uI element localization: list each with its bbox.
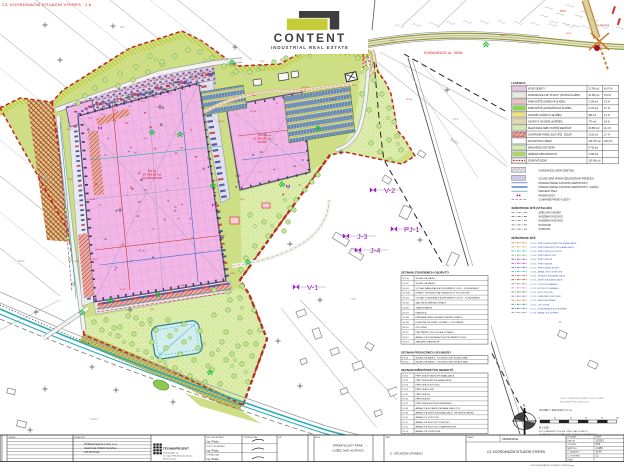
svg-text:150 00 Praha: 150 00 Praha [84, 450, 100, 454]
svg-text:C3-KOORDINAČNÍ SITUAČNÍ VÝKRES: C3-KOORDINAČNÍ SITUAČNÍ VÝKRES.dwg [530, 464, 575, 467]
svg-text:Technoprojekt, a.s.: Technoprojekt, a.s. [163, 452, 179, 455]
svg-text:IO 01 - PŘÍPOJKA SPLAŠKOVÉ KAN: IO 01 - PŘÍPOJKA SPLAŠKOVÉ KANALIZACE [531, 242, 577, 245]
svg-text:4,5%: 4,5% [170, 79, 175, 81]
svg-text:PŘÍPOJKA VODOVODU: PŘÍPOJKA VODOVODU [416, 384, 440, 387]
svg-text:Č. ZAKÁZKY: Č. ZAKÁZKY [568, 451, 581, 454]
svg-text:SO 03.1: SO 03.1 [403, 293, 412, 295]
svg-text:2,2 %: 2,2 % [604, 115, 610, 117]
svg-text:0: 0 [539, 418, 540, 420]
svg-text:CONTENT: CONTENT [274, 31, 347, 45]
svg-text:542/1: 542/1 [40, 177, 47, 181]
svg-text:PRO STAVEBNÍ POVOLENÍ LUŽEC NA: PRO STAVEBNÍ POVOLENÍ LUŽEC NAD VLTAVOU [539, 430, 588, 433]
svg-text:VYPRACOVAL: VYPRACOVAL [207, 454, 220, 457]
svg-text:PS 02: PS 02 [403, 362, 410, 364]
svg-text:770 m2: 770 m2 [589, 121, 597, 123]
svg-text:PARCELNÍ ČÍSLA: PARCELNÍ ČÍSLA [539, 190, 558, 193]
svg-text:≈0,000 = 163,230 m n.m.: ≈0,000 = 163,230 m n.m. [539, 408, 573, 412]
svg-text:IO 09: IO 09 [403, 412, 409, 414]
svg-text:4,5%: 4,5% [230, 273, 235, 275]
svg-text:75: 75 [601, 418, 603, 420]
svg-text:KOMUNIKACE (ASFALTOBETON): KOMUNIKACE (ASFALTOBETON) [539, 169, 575, 172]
svg-text:3 620 m2: 3 620 m2 [589, 134, 599, 136]
svg-text:PLYNOVOD: PLYNOVOD [539, 225, 552, 227]
svg-text:IO 02: IO 02 [403, 380, 409, 382]
svg-text:540/3: 540/3 [18, 259, 25, 263]
svg-text:IO 06: IO 06 [403, 399, 409, 401]
svg-text:INDUSTRIAL REAL ESTATE: INDUSTRIAL REAL ESTATE [271, 45, 349, 50]
svg-text:40,07 %: 40,07 % [604, 89, 612, 91]
svg-text:POZN.: VEŠKERÉ ROZMĚRY NUTNO O: POZN.: VEŠKERÉ ROZMĚRY NUTNO OVĚŘIT [560, 397, 605, 400]
svg-text:J-3: J-3 [357, 232, 367, 241]
svg-text:AREALOVÁ DEŠŤOVÁ KANALIZACE -: AREALOVÁ DEŠŤOVÁ KANALIZACE - RETENČNÍ N… [416, 411, 475, 414]
svg-text:±0,000: ±0,000 [257, 140, 266, 144]
svg-text:SO 05: SO 05 [218, 121, 225, 123]
svg-text:ZAŘÍZENÍ STAVENIŠTĚ: ZAŘÍZENÍ STAVENIŠTĚ [416, 341, 440, 344]
svg-text:TRAFOSTANICE: TRAFOSTANICE [416, 306, 433, 309]
svg-text:773/1: 773/1 [350, 297, 357, 301]
svg-text:V-2: V-2 [384, 186, 395, 195]
svg-text:3 270 m2: 3 270 m2 [589, 108, 599, 110]
svg-text:PŘÍPOJKA PLYNU: PŘÍPOJKA PLYNU [416, 388, 435, 391]
svg-text:OBJEDNATEL: OBJEDNATEL [502, 437, 519, 441]
svg-text:PŘÍPOJKA SPLAŠKOVÉ KANALIZACE: PŘÍPOJKA SPLAŠKOVÉ KANALIZACE [416, 374, 455, 377]
svg-text:6,7 %: 6,7 % [604, 108, 610, 110]
svg-text:PŘÍPRAVA ÚZEMÍ (HRUBÉ TERÉNNÍ: PŘÍPRAVA ÚZEMÍ (HRUBÉ TERÉNNÍ ÚPRAVY) [416, 316, 464, 319]
svg-text:REVIZE: REVIZE [9, 437, 17, 439]
svg-text:TR Real Finance Lužec s.r.o.,: TR Real Finance Lužec s.r.o., [84, 442, 118, 446]
svg-text:0,8 %: 0,8 % [604, 121, 610, 123]
svg-text:IO 03 - PŘÍPOJKA VODOVODU: IO 03 - PŘÍPOJKA VODOVODU [531, 250, 563, 253]
svg-text:Ing. Přáda: Ing. Přáda [207, 440, 220, 444]
svg-text:ZODP. PROJEKTANT: ZODP. PROJEKTANT [207, 445, 226, 448]
svg-text:771/2: 771/2 [452, 117, 459, 121]
svg-text:10/2013: 10/2013 [596, 440, 605, 442]
svg-text:PŘÍPOJKA VN: PŘÍPOJKA VN [416, 393, 431, 396]
svg-text:SO 04: SO 04 [403, 298, 410, 300]
svg-text:NOVÉ OBJEKTY: NOVÉ OBJEKTY [528, 88, 546, 91]
svg-text:+163,1: +163,1 [66, 129, 74, 131]
svg-text:IO 05 - PŘÍPOJKA VN: IO 05 - PŘÍPOJKA VN [531, 258, 553, 261]
svg-text:AKCE: AKCE [315, 436, 321, 439]
svg-text:KONEČNÉ CHODNÍKY (OPRAVY - ODL: KONEČNÉ CHODNÍKY (OPRAVY - ODLOŽENÉ) [416, 321, 464, 324]
svg-text:1:1250: 1:1250 [596, 448, 604, 450]
svg-text:ČÁST: ČÁST [386, 436, 392, 439]
svg-text:164,0: 164,0 [566, 33, 572, 35]
svg-text:ÚPRAVY CHODNÍKŮ NA OKRAJÍCH ST: ÚPRAVY CHODNÍKŮ NA OKRAJÍCH ST. PLOCHOČE… [416, 292, 471, 295]
svg-text:SEZNAM PROVOZNÍCH SOUBORŮ: SEZNAM PROVOZNÍCH SOUBORŮ [401, 350, 451, 355]
svg-text:163,2: 163,2 [390, 40, 396, 42]
svg-text:VÝKLAD KOMUNIKACE A ZPEVNĚNÉ P: VÝKLAD KOMUNIKACE A ZPEVNĚNÉ PLOCHY - KO… [416, 297, 481, 300]
svg-text:8 760 m2: 8 760 m2 [589, 148, 599, 150]
svg-text:LEGENDA: LEGENDA [511, 81, 527, 85]
svg-text:SO 10: SO 10 [403, 327, 410, 329]
svg-text:KOMUNIKACE A ZP. PLOCHY (ŽIVIČ: KOMUNIKACE A ZP. PLOCHY (ŽIVIČNÁ DLAŽBA) [528, 94, 580, 97]
svg-text:Cs. legií 1719/5, Moravská Ost: Cs. legií 1719/5, Moravská Ostrava [163, 455, 193, 458]
svg-text:21,4 %: 21,4 % [604, 128, 611, 130]
svg-text:NA STAVBĚ PŘED REALIZACÍ: NA STAVBĚ PŘED REALIZACÍ [560, 401, 589, 404]
svg-text:2,0 %: 2,0 % [604, 102, 610, 104]
svg-text:IO 10: IO 10 [403, 417, 409, 419]
svg-text:PARKOVIŠTĚ (ZÁMKOVÁ DLAŽBA): PARKOVIŠTĚ (ZÁMKOVÁ DLAŽBA) [528, 101, 566, 104]
svg-text:Kateřinská 34b/23, Smíchov,: Kateřinská 34b/23, Smíchov, [84, 446, 117, 450]
svg-text:SO 05: SO 05 [300, 91, 307, 93]
svg-text:10: 10 [554, 418, 556, 420]
svg-text:MĚŘÍTKO: MĚŘÍTKO [568, 447, 578, 450]
svg-text:SO 08: SO 08 [403, 317, 410, 319]
svg-text:SO 05: SO 05 [250, 111, 257, 113]
svg-text:HRANICE PARCEL KATASTRU NEMOVI: HRANICE PARCEL KATASTRU NEMOVITOSTÍ - VL… [539, 186, 599, 189]
svg-text:50: 50 [585, 418, 587, 420]
svg-text:M 1:1250: M 1:1250 [539, 426, 550, 429]
svg-text:AREALOVÉ ROZVODY ELEKTRO: AREALOVÉ ROZVODY ELEKTRO [416, 421, 450, 424]
svg-text:AREALOVÁ SPLAŠKOVÁ KANALIZACE: AREALOVÁ SPLAŠKOVÁ KANALIZACE Č.01 [416, 407, 462, 410]
svg-text:±0,000=163,30: ±0,000=163,30 [142, 176, 162, 180]
svg-text:HROMOSVODY: HROMOSVODY [539, 195, 556, 197]
svg-text:Ing. Přáda: Ing. Přáda [207, 457, 220, 461]
svg-text:PRŮMYSLOVÝ PARK: PRŮMYSLOVÝ PARK [333, 443, 363, 448]
svg-text:SO 07: SO 07 [403, 312, 410, 314]
svg-text:PŘÍPOJKA DEŠŤOVÉ KANALIZACE: PŘÍPOJKA DEŠŤOVÉ KANALIZACE [416, 379, 453, 382]
svg-text:IO 11: IO 11 [403, 422, 409, 424]
svg-text:OPLOCENÍ: OPLOCENÍ [416, 326, 428, 329]
svg-text:ul. 9.května: ul. 9.května [597, 24, 610, 27]
svg-text:AREALOVÉ ROZVODY SLABOPROUDÉ: AREALOVÉ ROZVODY SLABOPROUDÉ [416, 425, 457, 428]
svg-text:SO 06: SO 06 [403, 307, 410, 309]
svg-text:553/4: 553/4 [560, 10, 567, 13]
svg-text:S: S [523, 403, 526, 408]
svg-text:163,5: 163,5 [500, 35, 506, 37]
svg-text:100: 100 [616, 418, 619, 420]
svg-text:VÝKLAD KANALIZACE A ZPEVNĚNÉ P: VÝKLAD KANALIZACE A ZPEVNĚNÉ PLOCHY - KO… [416, 287, 480, 290]
svg-text:SKLADOVÁ HALA 1 - TECHNOLOGIE: SKLADOVÁ HALA 1 - TECHNOLOGIE SKLADOVÁNÍ [416, 356, 469, 359]
svg-text:IO 08: IO 08 [403, 408, 409, 410]
svg-text:KONTROLOVAL: KONTROLOVAL [244, 436, 258, 439]
svg-text:ZASTAVOVACÍ ÚZEMÍ: ZASTAVOVACÍ ÚZEMÍ [528, 140, 552, 143]
svg-text:15,8 %: 15,8 % [604, 95, 611, 97]
svg-text:IO 16 - OPLOCENÍ: IO 16 - OPLOCENÍ [531, 303, 550, 306]
svg-text:VEŘEJNÁ PROSTRANSTVÍ: VEŘEJNÁ PROSTRANSTVÍ [528, 153, 557, 156]
svg-text:IO 11 - VODOVOD AREÁLU: IO 11 - VODOVOD AREÁLU [531, 283, 559, 286]
svg-text:IO 06 - PŘÍPOJKA NN: IO 06 - PŘÍPOJKA NN [531, 262, 553, 265]
svg-text:DATUM: DATUM [568, 439, 576, 442]
svg-text:VODOVOD: VODOVOD [539, 229, 551, 231]
svg-text:Ing. Přáda: Ing. Přáda [207, 448, 220, 452]
svg-text:OCHRANNÉ PÁSMO (DLE ÚPD) - ZEL: OCHRANNÉ PÁSMO (DLE ÚPD) - ZELEŇ [528, 133, 572, 136]
svg-text:SKLADOVÁ HALA 2 - TECHNOLOGIE: SKLADOVÁ HALA 2 - TECHNOLOGIE SKLADOVÁNÍ [416, 361, 469, 364]
svg-text:ZELEŇ KEČE NEBO VNITŘNÍ MEZIČÁ: ZELEŇ KEČE NEBO VNITŘNÍ MEZIČÁST [528, 127, 572, 130]
svg-text:C3. KOORDINAČNÍ SITUAČNÍ VÝKRE: C3. KOORDINAČNÍ SITUAČNÍ VÝKRES - 1:8 [2, 2, 92, 7]
svg-text:J-4: J-4 [370, 246, 380, 255]
svg-text:2xA4: 2xA4 [596, 436, 602, 439]
svg-text:SEZNAM STAVEBNÍCH OBJEKTŮ: SEZNAM STAVEBNÍCH OBJEKTŮ [401, 270, 449, 275]
svg-text:INVESTOR: INVESTOR [75, 437, 86, 439]
svg-text:IO 03: IO 03 [205, 289, 211, 291]
svg-text:SO 11: SO 11 [403, 332, 410, 334]
svg-text:SO 02: SO 02 [403, 283, 410, 285]
svg-text:PŘÍPOJKA ELEKTROKOMUNIKACE: PŘÍPOJKA ELEKTROKOMUNIKACE [416, 402, 453, 405]
svg-text:100,0 %: 100,0 % [604, 141, 612, 143]
svg-text:Č. VÝKRESU: Č. VÝKRESU [568, 455, 581, 458]
svg-text:V-1: V-1 [307, 283, 318, 292]
svg-text:AREALOVÝ VODOVOD: AREALOVÝ VODOVOD [416, 416, 440, 419]
svg-text:IO 18 - AREALOVÉ ÚPRAVY: IO 18 - AREALOVÉ ÚPRAVY [531, 312, 560, 315]
svg-text:NADZEMNÍ VODOVOD: NADZEMNÍ VODOVOD [539, 216, 564, 219]
svg-text:NADZEMNÍ VODOVOD: NADZEMNÍ VODOVOD [539, 220, 564, 223]
svg-text:PŘÍSTŘEŠKY PRO KOLA A KOČÁRKY: PŘÍSTŘEŠKY PRO KOLA A KOČÁRKY [416, 331, 455, 334]
svg-text:980 m2: 980 m2 [589, 115, 597, 117]
svg-text:153 060 m2: 153 060 m2 [589, 161, 602, 163]
svg-text:ZÁJMOVÉ ÚZEMÍ: ZÁJMOVÉ ÚZEMÍ [528, 160, 547, 163]
svg-text:SO 12: SO 12 [403, 337, 410, 339]
svg-text:CELOPLOŠNÁ ÚPRAVA ŽELEZNIČNÍHO: CELOPLOŠNÁ ÚPRAVA ŽELEZNIČNÍHO PŘEJEZDU [539, 177, 595, 180]
svg-text:SDĚLOVACÍ VEDENÍ: SDĚLOVACÍ VEDENÍ [539, 211, 562, 214]
svg-text:21 780 m2: 21 780 m2 [589, 89, 601, 91]
svg-text:IO 12 - PLYNOVOD AREÁLU: IO 12 - PLYNOVOD AREÁLU [531, 287, 560, 290]
svg-text:SO 05: SO 05 [302, 87, 309, 89]
svg-text:STUPEŇ: STUPEŇ [568, 443, 577, 446]
svg-text:20 460 m2: 20 460 m2 [589, 95, 601, 97]
svg-text:IO 01: IO 01 [403, 375, 409, 377]
svg-text:VRÁTNICE: VRÁTNICE [416, 311, 428, 314]
svg-text:SO 05: SO 05 [330, 99, 337, 101]
svg-text:4 320 m2: 4 320 m2 [589, 154, 599, 156]
svg-text:FORMÁT: FORMÁT [568, 436, 578, 439]
svg-text:IO 10 - DEŠŤOVÁ KANALIZACE: IO 10 - DEŠŤOVÁ KANALIZACE [531, 279, 564, 282]
svg-text:IO 08 - AREALOVÉ OSVĚTLENÍ: IO 08 - AREALOVÉ OSVĚTLENÍ [531, 271, 563, 274]
svg-text:SEZNAM INŽENÝRSKÝCH OBJEKTŮ: SEZNAM INŽENÝRSKÝCH OBJEKTŮ [401, 367, 453, 372]
svg-text:TECHNOPROJEKT: TECHNOPROJEKT [163, 447, 189, 451]
svg-text:SO 05: SO 05 [403, 303, 410, 305]
svg-text:SO 09: SO 09 [403, 322, 410, 324]
svg-text:PS 01: PS 01 [403, 357, 410, 359]
svg-text:SO 03: SO 03 [403, 288, 410, 290]
svg-text:1202/1: 1202/1 [90, 417, 98, 421]
svg-text:SKLADOVÁ HALA 2: SKLADOVÁ HALA 2 [416, 282, 437, 285]
svg-text:IO 03: IO 03 [403, 385, 409, 387]
svg-text:OKAPOVÝ CHODNÍK (KAČÍREK): OKAPOVÝ CHODNÍK (KAČÍREK) [528, 120, 563, 123]
svg-text:IO 13: IO 13 [403, 431, 409, 433]
svg-text:SO 13: SO 13 [403, 342, 410, 344]
svg-text:AREALOVÉ OSVĚTLENÍ: AREALOVÉ OSVĚTLENÍ [416, 430, 441, 433]
svg-text:AREALOVÉ KOMUNIKACE A ZPEVNĚNÉ: AREALOVÉ KOMUNIKACE A ZPEVNĚNÉ PLOCHY [416, 336, 467, 339]
svg-text:SADOVÉ A TERENNÍ ÚPRAVY: SADOVÉ A TERENNÍ ÚPRAVY [416, 302, 447, 305]
svg-text:PARKOVIŠTĚ (ZATRAVŇOVACÍ DLAŽB: PARKOVIŠTĚ (ZATRAVŇOVACÍ DLAŽBA) [528, 107, 572, 110]
svg-text:IO 07: IO 07 [403, 403, 409, 405]
svg-text:PŘÍPOJKA NN: PŘÍPOJKA NN [416, 398, 431, 401]
svg-text:IO 14 - VEŘEJNÉ OSVĚTLENÍ: IO 14 - VEŘEJNÉ OSVĚTLENÍ [531, 295, 562, 298]
svg-text:SO 01: SO 01 [403, 278, 410, 280]
svg-text:IO 13 - ROZVODY NN: IO 13 - ROZVODY NN [531, 292, 553, 294]
svg-text:IO 04 - PŘÍPOJKA PLYNU: IO 04 - PŘÍPOJKA PLYNU [531, 254, 557, 257]
svg-text:LUŽEC NAD VLTAVOU: LUŽEC NAD VLTAVOU [332, 448, 363, 453]
svg-text:IO 09 - SPLAŠKOVÁ KANALIZACE: IO 09 - SPLAŠKOVÁ KANALIZACE [531, 275, 566, 278]
svg-text:702 00 Ostrava: 702 00 Ostrava [163, 458, 177, 461]
svg-text:IO 03: IO 03 [112, 91, 118, 93]
svg-text:115,0: 115,0 [92, 259, 98, 261]
svg-text:IO 12: IO 12 [403, 426, 409, 428]
svg-text:IO 15 - SADOVÉ ÚPRAVY: IO 15 - SADOVÉ ÚPRAVY [531, 299, 557, 302]
svg-text:VED. PROJEKTANT: VED. PROJEKTANT [207, 436, 225, 439]
svg-text:KOMUNIKACE UL. 553M: KOMUNIKACE UL. 553M [424, 51, 463, 55]
svg-text:MIMOAREÁLOVÉ ÚZEMÍ: MIMOAREÁLOVÉ ÚZEMÍ [528, 147, 555, 150]
svg-text:25: 25 [570, 418, 572, 420]
svg-text:IO 03: IO 03 [90, 199, 96, 201]
svg-text:CHODNÍK (ZÁMKOVÁ DLAŽBA): CHODNÍK (ZÁMKOVÁ DLAŽBA) [528, 114, 562, 117]
svg-text:SO 05: SO 05 [406, 99, 413, 101]
svg-text:29 860 m2: 29 860 m2 [589, 128, 601, 130]
svg-text:IO 04: IO 04 [403, 389, 409, 391]
svg-text:DSP: DSP [596, 444, 601, 446]
svg-text:IO 02 - PŘÍPOJKA DEŠŤOVÉ KANAL: IO 02 - PŘÍPOJKA DEŠŤOVÉ KANALIZACE [531, 246, 575, 249]
svg-text:+163,1: +163,1 [140, 85, 148, 87]
svg-text:PARÉ: PARÉ [568, 458, 574, 461]
svg-text:544: 544 [120, 25, 125, 29]
svg-text:IO 07 - PŘÍPOJKA ELEKTRO: IO 07 - PŘÍPOJKA ELEKTRO [531, 266, 560, 269]
svg-text:OCHRANNÉ PÁSMO VLEČKY: OCHRANNÉ PÁSMO VLEČKY [539, 199, 571, 202]
svg-text:IO 03: IO 03 [120, 289, 126, 291]
svg-text:IO 05: IO 05 [403, 394, 409, 396]
svg-text:C. SITUAČNÍ VÝKRESY: C. SITUAČNÍ VÝKRESY [390, 451, 423, 456]
svg-text:SKLADOVÁ HALA 1: SKLADOVÁ HALA 1 [416, 277, 437, 280]
svg-text:HRANICE PARCEL KATASTRU NEMOVI: HRANICE PARCEL KATASTRU NEMOVITOSTÍ [539, 182, 588, 185]
svg-text:C3. KOORDINAČNÍ SITUAČNÍ VÝKRE: C3. KOORDINAČNÍ SITUAČNÍ VÝKRES [487, 449, 545, 454]
svg-text:NÁZEV: NÁZEV [468, 436, 475, 439]
svg-text:PJ-1: PJ-1 [404, 225, 419, 234]
svg-text:IO 17 - KOMUNIKACE A ZPEVNĚNÉ: IO 17 - KOMUNIKACE A ZPEVNĚNÉ [531, 307, 568, 310]
svg-text:1 240 m2: 1 240 m2 [589, 102, 599, 104]
svg-text:144 370 m2: 144 370 m2 [589, 141, 602, 143]
svg-text:13-25: 13-25 [596, 452, 603, 454]
svg-text:2,7 %: 2,7 % [604, 134, 610, 136]
